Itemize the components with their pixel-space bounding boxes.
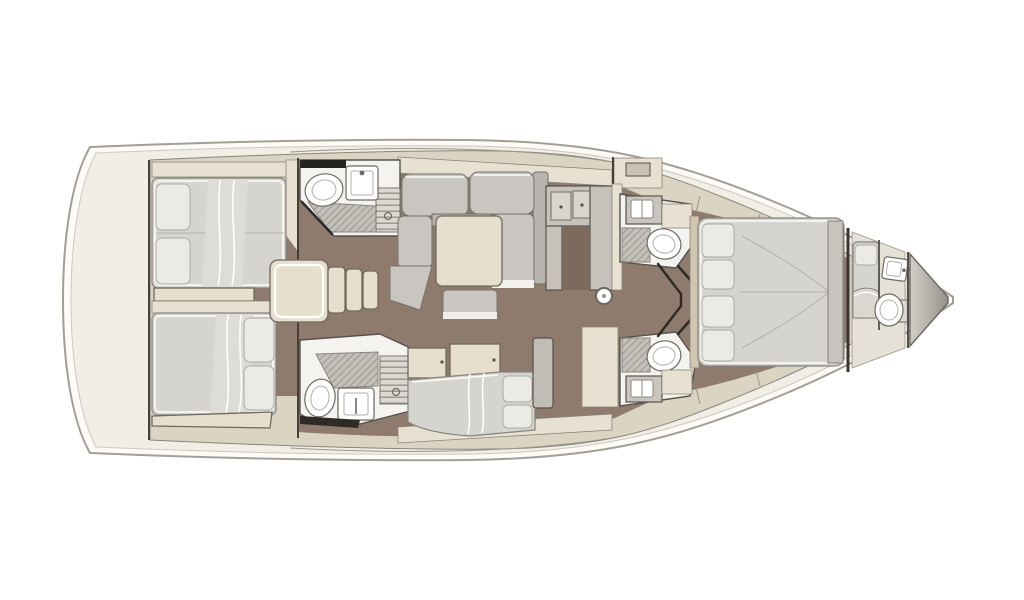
pillow <box>156 238 190 284</box>
step-2 <box>346 269 362 311</box>
anchor-locker-shape <box>910 254 948 346</box>
ottoman-trim <box>443 312 497 319</box>
crew-sink <box>882 256 909 281</box>
floor-plan-svg <box>0 0 1024 600</box>
yacht-floor-plan <box>0 0 1024 600</box>
faucet <box>360 171 365 176</box>
aft-cabin-starboard <box>152 301 276 428</box>
pillow <box>503 376 532 402</box>
mast-post <box>596 288 612 304</box>
sofa-left-seat <box>398 216 432 268</box>
bedside-locker <box>662 204 692 228</box>
foot-bench <box>154 288 254 301</box>
cabinet-handle <box>580 203 583 206</box>
sofa-back-cushion <box>402 174 468 216</box>
sink <box>626 196 662 224</box>
galley-counter-right <box>590 186 614 290</box>
settee-end-cabinet <box>533 338 553 408</box>
pillow <box>702 330 734 361</box>
pillow <box>702 224 734 257</box>
galley <box>546 184 622 304</box>
settee-locker <box>408 348 446 378</box>
step-3 <box>363 271 378 309</box>
pillow <box>702 296 734 327</box>
pillow <box>702 260 734 289</box>
nav-cabinet <box>582 327 618 407</box>
locker-handle <box>440 360 443 363</box>
cabinet-handle <box>559 205 562 208</box>
locker-handle <box>492 358 495 361</box>
anchor-locker <box>910 254 948 346</box>
headboard-shelf <box>152 162 298 177</box>
slatted-bench <box>380 356 412 404</box>
sink <box>626 376 662 402</box>
deck-hatch <box>626 163 650 176</box>
pillow <box>244 366 274 410</box>
wardrobe-wedge <box>286 160 298 252</box>
sink <box>338 388 374 420</box>
slatted-bench <box>376 188 400 232</box>
sofa-back-cushion <box>470 172 534 214</box>
pillow <box>855 245 877 265</box>
mid-shelf <box>152 301 272 313</box>
duvet-foot-roll <box>828 221 843 363</box>
pillow <box>156 184 190 230</box>
dinette-table <box>436 216 502 286</box>
galley-floor <box>562 226 590 290</box>
step-1 <box>328 267 345 313</box>
pillow <box>503 405 532 428</box>
pillow <box>244 318 274 362</box>
shower-grate <box>622 338 650 372</box>
landing <box>270 260 328 322</box>
sink <box>346 166 378 200</box>
bedside-locker <box>662 370 692 394</box>
duvet <box>202 179 248 287</box>
crew-compartment <box>848 228 908 372</box>
door-header <box>300 160 346 168</box>
shower-grate <box>622 228 650 262</box>
